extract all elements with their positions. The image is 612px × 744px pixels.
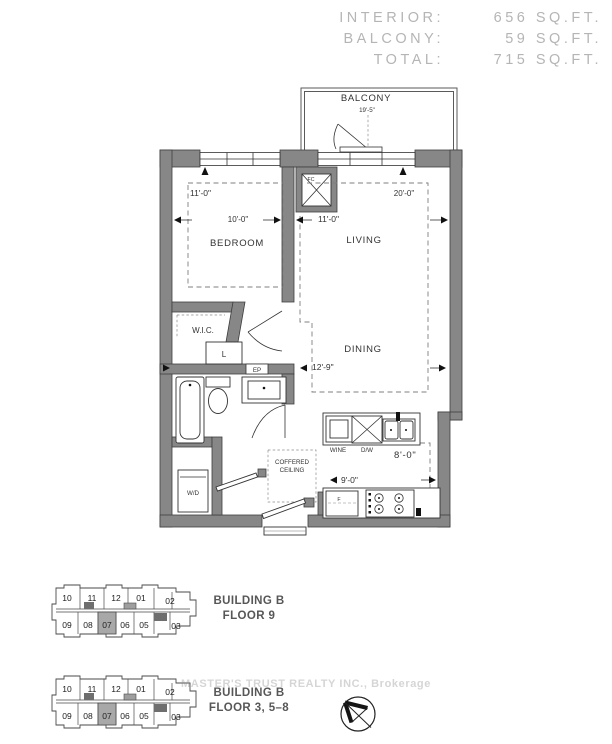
unit-number: 08 (83, 711, 93, 721)
dining-room: DINING 12'-9" (312, 344, 382, 372)
fridge: F (326, 491, 358, 516)
unit-number: 06 (120, 711, 130, 721)
vanity-sink (242, 377, 286, 403)
dining-width-dim: 12'-9" (312, 362, 334, 372)
tub-faucet-icon (189, 384, 192, 387)
bathroom (176, 377, 286, 443)
dishwasher (352, 416, 382, 443)
north-arrow-icon (341, 697, 375, 731)
sink-faucet-icon (263, 387, 266, 390)
fridge-label: F (337, 497, 340, 503)
kitchen-length-dim: 9'-0" (341, 475, 358, 485)
floorplan-drawing: BALCONY 19'-5" (0, 0, 612, 744)
unit-number: 06 (120, 620, 130, 630)
living-length-dim: 20'-0" (394, 189, 415, 198)
laundry-closet: W/D (178, 470, 208, 512)
unit-number: 12 (111, 593, 121, 603)
wine-label: WINE (330, 447, 346, 454)
unit-number: 11 (88, 593, 97, 603)
unit-number: 08 (83, 620, 93, 630)
balcony-slider-door (340, 147, 382, 152)
balcony-label: BALCONY (341, 93, 391, 104)
elevator-core (84, 693, 94, 700)
unit-number: 01 (136, 684, 146, 694)
unit-number: 01 (136, 593, 146, 603)
service-core (154, 613, 167, 621)
stair-core (124, 694, 136, 700)
wine-cooler (326, 416, 352, 442)
bedroom-width-dim: 11'-0" (190, 188, 211, 198)
fan-coil-unit: FC (302, 174, 331, 206)
coffered-label-2: CEILING (280, 467, 305, 474)
interior-walls (160, 167, 337, 515)
unit-number: 12 (111, 684, 121, 694)
bedroom-door-leaf (248, 311, 282, 332)
stair-core (124, 603, 136, 609)
keyplan-floor9: 10 11 12 01 02 09 08 07 06 05 03 (52, 585, 196, 637)
unit-number-highlighted: 07 (102, 620, 112, 630)
bedroom-depth-dim: 10'-0" (228, 215, 249, 224)
stove (366, 490, 421, 517)
linen-label: L (222, 350, 227, 359)
unit-number: 10 (62, 684, 72, 694)
unit-number: 05 (139, 711, 149, 721)
living-width-dim: 11'-0" (318, 214, 339, 224)
wic-label: W.I.C. (192, 326, 214, 335)
unit-number-highlighted: 07 (102, 711, 112, 721)
coffered-ceiling: COFFERED CEILING (275, 459, 310, 474)
coffered-label-1: COFFERED (275, 459, 310, 466)
keyplan2-building-label: BUILDING B (213, 687, 284, 699)
unit-number: 09 (62, 620, 72, 630)
unit-number: 11 (88, 684, 97, 694)
toilet (206, 377, 230, 414)
keyplan-floor3-5-8: 10 11 12 01 02 09 08 07 06 05 03 (52, 676, 196, 728)
unit-number: 10 (62, 593, 72, 603)
electrical-panel-label: EP (253, 367, 261, 374)
kitchen-width-dim: 8'-0" (394, 450, 416, 461)
unit-number: 03 (171, 712, 181, 722)
wd-label: W/D (187, 490, 200, 497)
unit-number: 05 (139, 620, 149, 630)
fc-label: FC (308, 177, 315, 183)
dw-label: D/W (361, 447, 373, 454)
unit-number: 02 (165, 687, 175, 697)
dining-label: DINING (344, 344, 381, 355)
bedroom-label: BEDROOM (210, 238, 264, 249)
floorplan-page: INTERIOR: 656 SQ.FT. BALCONY: 59 SQ.FT. … (0, 0, 612, 744)
living-label: LIVING (346, 235, 381, 246)
elevator-core (84, 602, 94, 609)
service-core (154, 704, 167, 712)
keyplan1-building-label: BUILDING B (213, 595, 284, 607)
sink-faucet-icon (396, 412, 400, 421)
keyplan1-floor-label: FLOOR 9 (223, 610, 276, 622)
balcony: BALCONY 19'-5" (301, 88, 457, 151)
kitchen: WINE D/W 8'-0" 9'-0" F (323, 412, 440, 518)
unit-number: 02 (165, 596, 175, 606)
unit-number: 03 (171, 621, 181, 631)
balcony-door-leaf (338, 124, 368, 149)
unit-number: 09 (62, 711, 72, 721)
keyplan2-floor-label: FLOOR 3, 5–8 (209, 702, 289, 714)
balcony-dimension: 19'-5" (359, 107, 375, 114)
